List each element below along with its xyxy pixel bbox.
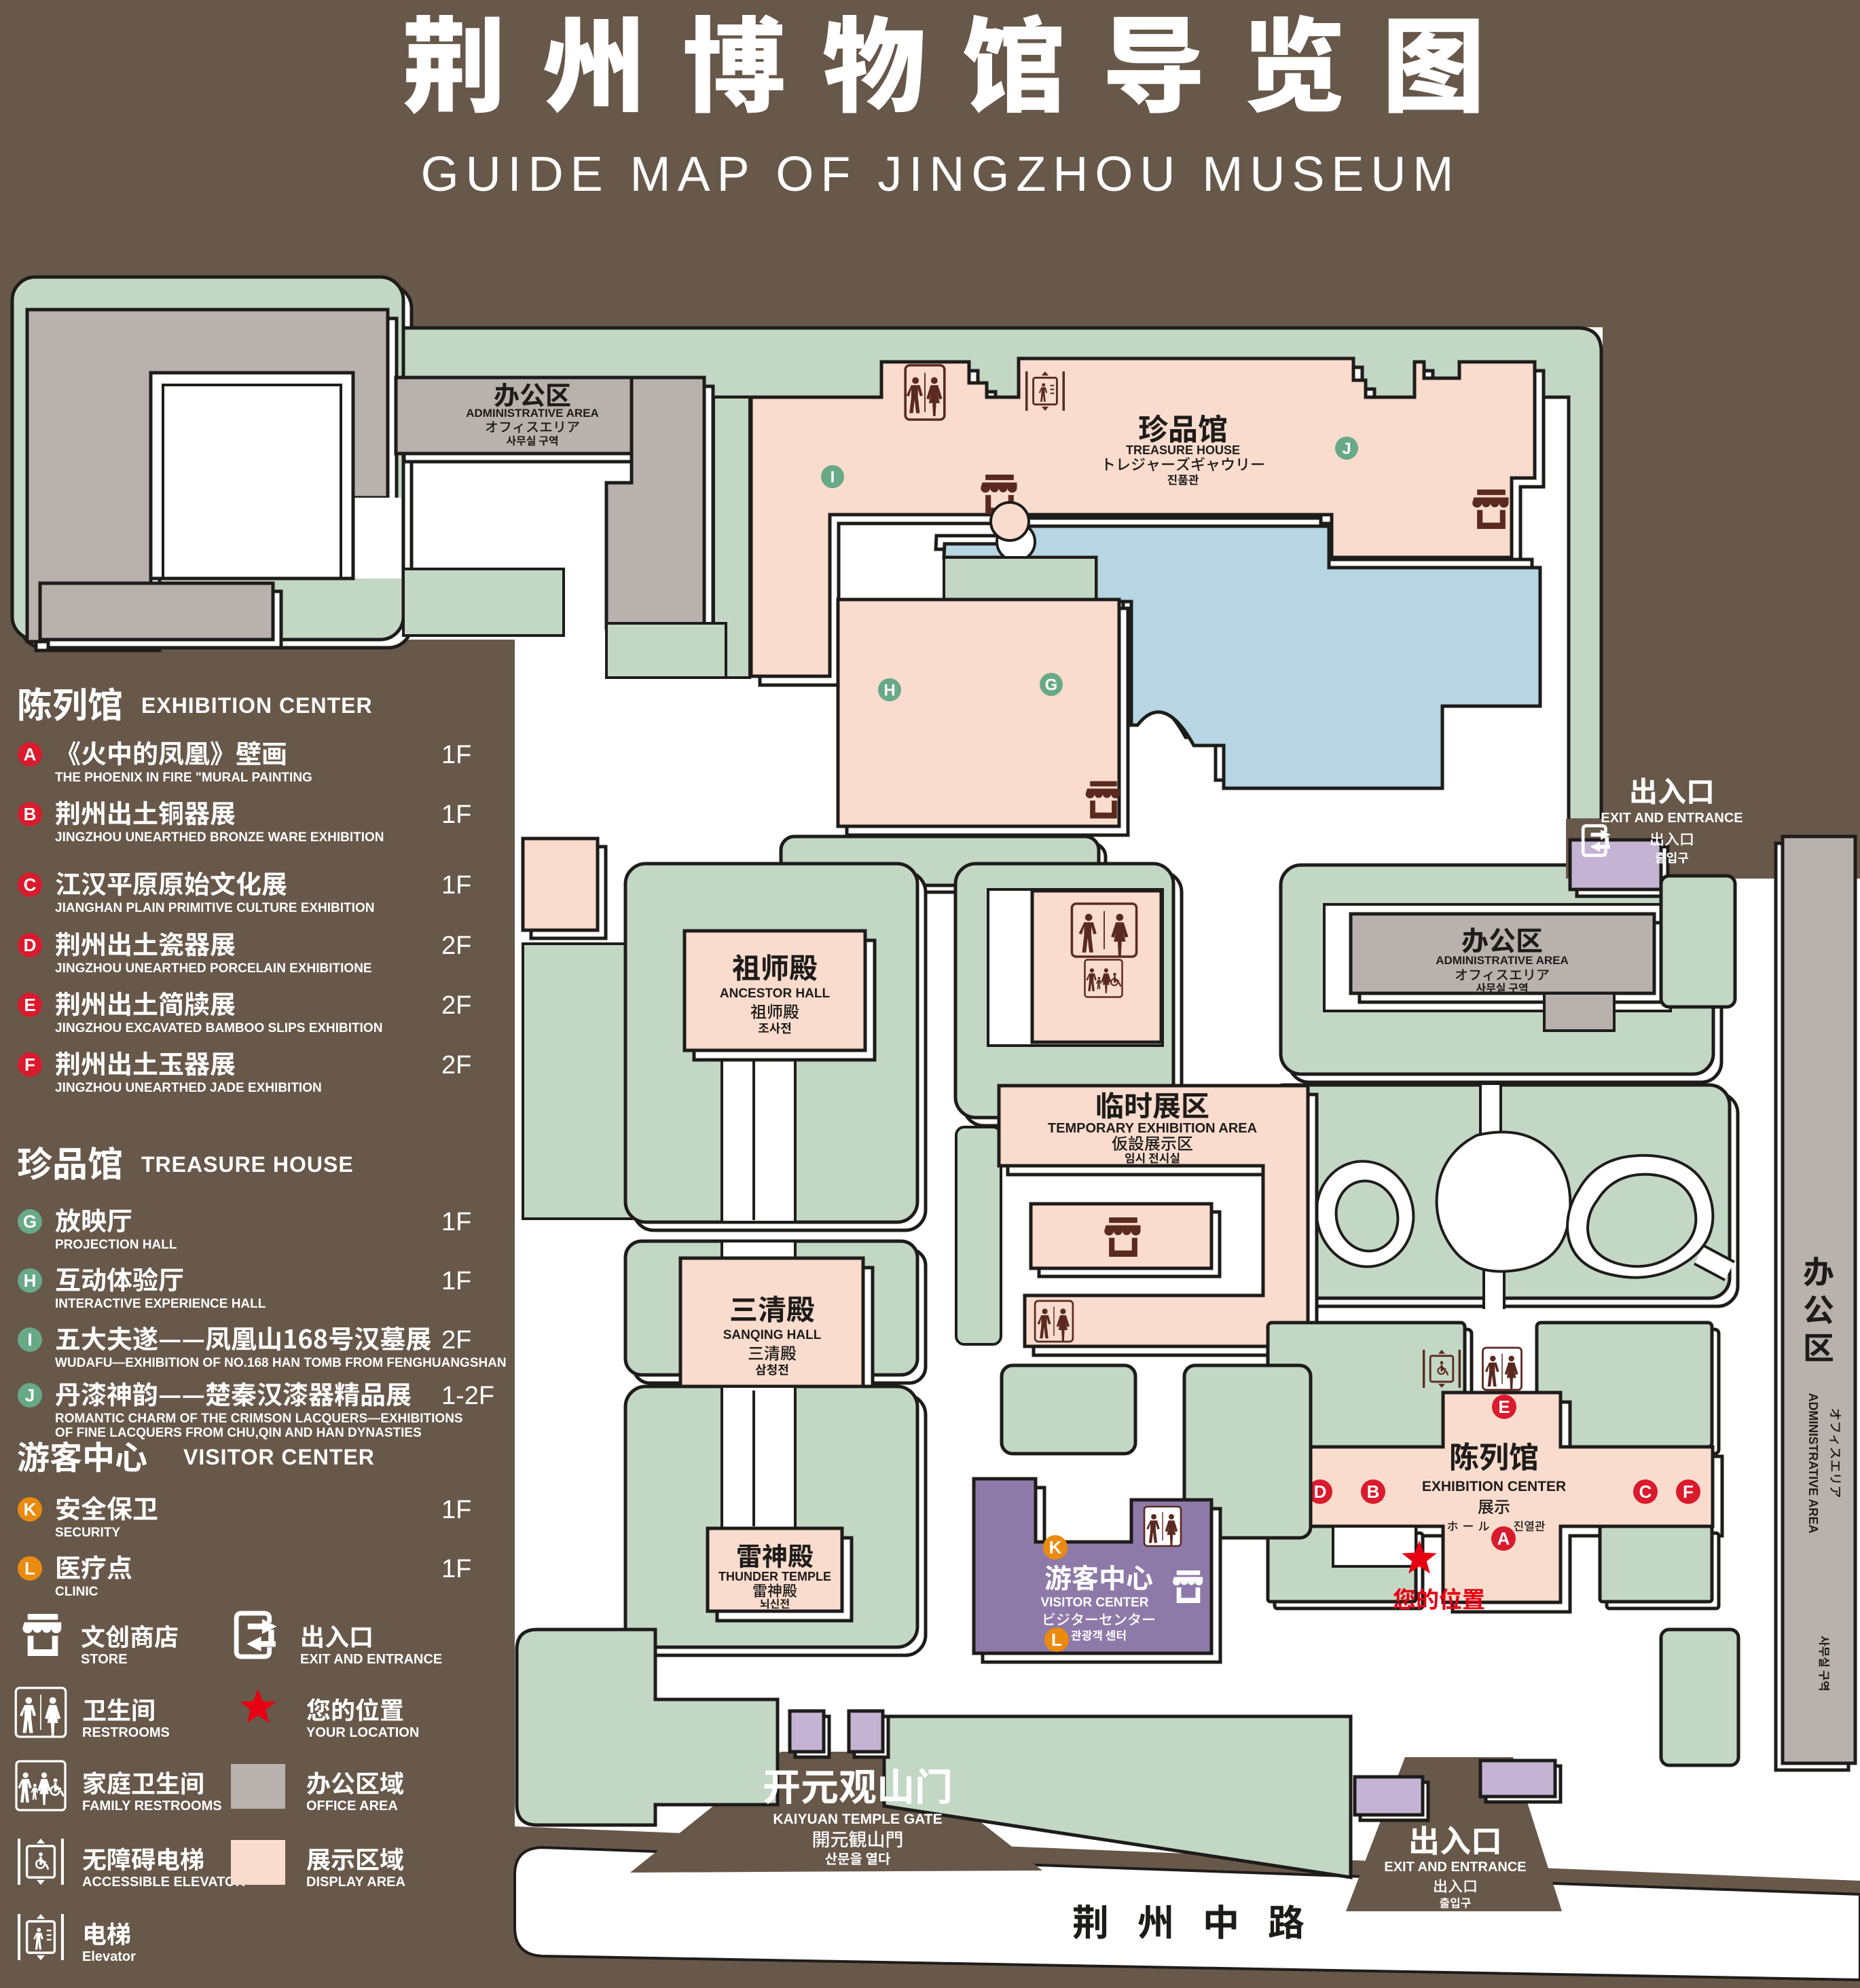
svg-text:2F: 2F [441,991,471,1020]
svg-text:TREASURE HOUSE: TREASURE HOUSE [141,1152,354,1177]
svg-text:EXIT AND ENTRANCE: EXIT AND ENTRANCE [300,1652,442,1667]
svg-text:B: B [24,804,37,824]
svg-text:JINGZHOU UNEARTHED PORCELAIN E: JINGZHOU UNEARTHED PORCELAIN EXHIBITIONE [55,961,372,976]
svg-text:G: G [1045,676,1058,694]
svg-text:H: H [883,681,895,699]
svg-text:JINGZHOU EXCAVATED BAMBOO SLIP: JINGZHOU EXCAVATED BAMBOO SLIPS EXHIBITI… [55,1021,382,1035]
svg-text:EXIT AND ENTRANCE: EXIT AND ENTRANCE [1384,1860,1526,1875]
svg-text:C: C [1639,1481,1652,1502]
svg-text:D: D [1314,1481,1327,1502]
svg-text:1F: 1F [441,871,471,900]
svg-text:J: J [25,1385,35,1405]
svg-text:I: I [27,1329,32,1350]
svg-text:ACCESSIBLE ELEVATOR: ACCESSIBLE ELEVATOR [82,1875,246,1890]
svg-text:ANCESTOR HALL: ANCESTOR HALL [720,987,831,1001]
svg-text:1F: 1F [441,741,471,769]
svg-text:ADMINISTRATIVE AREA: ADMINISTRATIVE AREA [1806,1393,1820,1534]
svg-text:OF FINE LACQUERS FROM CHU,QIN: OF FINE LACQUERS FROM CHU,QIN AND HAN DY… [55,1426,422,1440]
svg-text:K: K [24,1499,37,1520]
svg-text:E: E [1498,1397,1510,1417]
svg-text:1F: 1F [441,1496,471,1524]
svg-text:JIANGHAN PLAIN PRIMITIVE CULTU: JIANGHAN PLAIN PRIMITIVE CULTURE EXHIBIT… [55,901,374,915]
svg-text:FAMILY RESTROOMS: FAMILY RESTROOMS [82,1799,222,1814]
svg-text:GUIDE MAP OF JINGZHOU MUSEUM: GUIDE MAP OF JINGZHOU MUSEUM [421,147,1461,202]
svg-text:F: F [24,1054,35,1075]
svg-text:1F: 1F [441,1208,471,1236]
svg-text:ADMINISTRATIVE AREA: ADMINISTRATIVE AREA [466,407,599,420]
svg-text:1-2F: 1-2F [441,1382,494,1410]
svg-text:EXHIBITION CENTER: EXHIBITION CENTER [1422,1479,1566,1494]
svg-text:JINGZHOU UNEARTHED JADE EXHIBI: JINGZHOU UNEARTHED JADE EXHIBITION [55,1081,322,1095]
svg-text:A: A [24,744,37,765]
svg-text:STORE: STORE [81,1652,128,1667]
svg-text:YOUR LOCATION: YOUR LOCATION [306,1725,419,1740]
svg-text:PROJECTION HALL: PROJECTION HALL [55,1238,177,1252]
svg-text:D: D [24,935,37,955]
svg-text:Elevator: Elevator [82,1949,136,1964]
svg-text:INTERACTIVE EXPERIENCE HALL: INTERACTIVE EXPERIENCE HALL [55,1297,266,1311]
svg-text:VISITOR CENTER: VISITOR CENTER [183,1445,375,1469]
svg-text:SECURITY: SECURITY [55,1526,120,1540]
svg-text:THE PHOENIX IN FIRE "MURAL PAI: THE PHOENIX IN FIRE "MURAL PAINTING [55,771,312,785]
svg-text:SANQING HALL: SANQING HALL [723,1328,822,1342]
svg-text:EXHIBITION CENTER: EXHIBITION CENTER [141,693,373,718]
svg-text:2F: 2F [441,1326,471,1355]
svg-text:VISITOR CENTER: VISITOR CENTER [1040,1596,1148,1610]
svg-text:TEMPORARY EXHIBITION AREA: TEMPORARY EXHIBITION AREA [1048,1121,1257,1136]
svg-text:THUNDER TEMPLE: THUNDER TEMPLE [718,1570,831,1583]
svg-text:WUDAFU—EXHIBITION OF NO.168 HA: WUDAFU—EXHIBITION OF NO.168 HAN TOMB FRO… [55,1356,507,1370]
svg-text:CLINIC: CLINIC [55,1585,98,1599]
svg-text:J: J [1342,439,1351,458]
svg-text:H: H [24,1270,37,1291]
svg-text:I: I [831,468,835,486]
svg-text:2F: 2F [441,932,471,960]
svg-text:L: L [24,1558,35,1579]
svg-text:A: A [1497,1528,1510,1549]
svg-text:DISPLAY AREA: DISPLAY AREA [306,1875,405,1890]
svg-text:L: L [1051,1630,1062,1650]
svg-text:1F: 1F [441,1267,471,1295]
svg-text:G: G [23,1211,37,1232]
svg-text:1F: 1F [441,800,471,829]
svg-text:B: B [1367,1481,1380,1502]
svg-text:E: E [24,995,35,1015]
svg-text:1F: 1F [441,1555,471,1583]
svg-text:F: F [1683,1481,1694,1502]
svg-text:EXIT AND ENTRANCE: EXIT AND ENTRANCE [1601,811,1743,826]
svg-text:OFFICE AREA: OFFICE AREA [306,1799,398,1814]
svg-text:ROMANTIC CHARM OF THE CRIMSON: ROMANTIC CHARM OF THE CRIMSON LACQUERS—E… [55,1412,463,1426]
svg-text:K: K [1049,1537,1062,1558]
svg-text:JINGZHOU UNEARTHED BRONZE WARE: JINGZHOU UNEARTHED BRONZE WARE EXHIBITIO… [55,830,384,845]
svg-text:RESTROOMS: RESTROOMS [82,1725,170,1740]
svg-text:KAIYUAN TEMPLE GATE: KAIYUAN TEMPLE GATE [773,1811,942,1827]
svg-text:TREASURE HOUSE: TREASURE HOUSE [1126,443,1240,457]
svg-text:2F: 2F [441,1051,471,1080]
svg-text:C: C [24,875,37,895]
svg-text:ADMINISTRATIVE AREA: ADMINISTRATIVE AREA [1436,954,1569,967]
